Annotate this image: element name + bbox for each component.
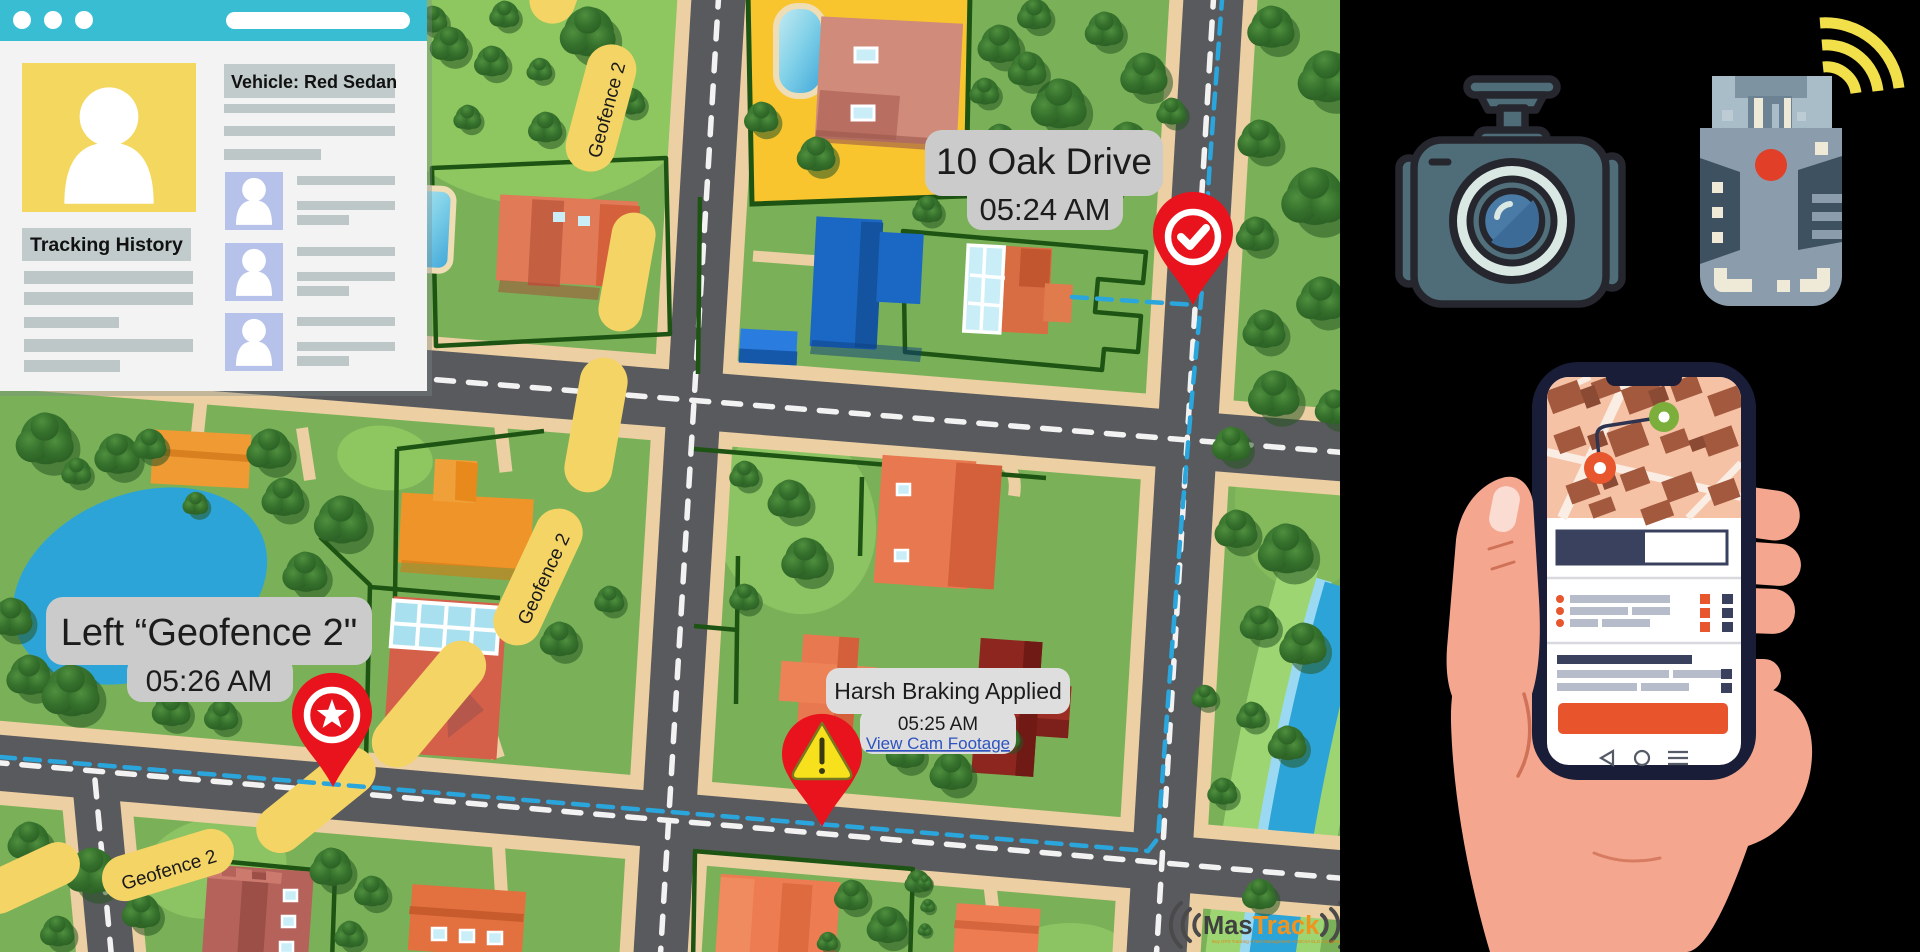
svg-text:Harsh Braking Applied: Harsh Braking Applied xyxy=(834,678,1062,704)
svg-text:05:24 AM: 05:24 AM xyxy=(980,192,1111,227)
svg-text:Left “Geofence 2": Left “Geofence 2" xyxy=(61,612,358,654)
svg-text:Vehicle: Red Sedan: Vehicle: Red Sedan xyxy=(231,72,397,92)
svg-text:05:26 AM: 05:26 AM xyxy=(146,665,273,698)
svg-text:05:25 AM: 05:25 AM xyxy=(898,714,978,735)
svg-text:MasTrack: MasTrack xyxy=(1203,912,1320,940)
svg-text:Tracking History: Tracking History xyxy=(30,234,183,256)
svg-text:Buy GPS Tracking • Fleet Manag: Buy GPS Tracking • Fleet Management • FM… xyxy=(1212,939,1345,944)
svg-text:10 Oak Drive: 10 Oak Drive xyxy=(936,141,1152,182)
svg-text:View Cam Footage: View Cam Footage xyxy=(866,734,1010,753)
